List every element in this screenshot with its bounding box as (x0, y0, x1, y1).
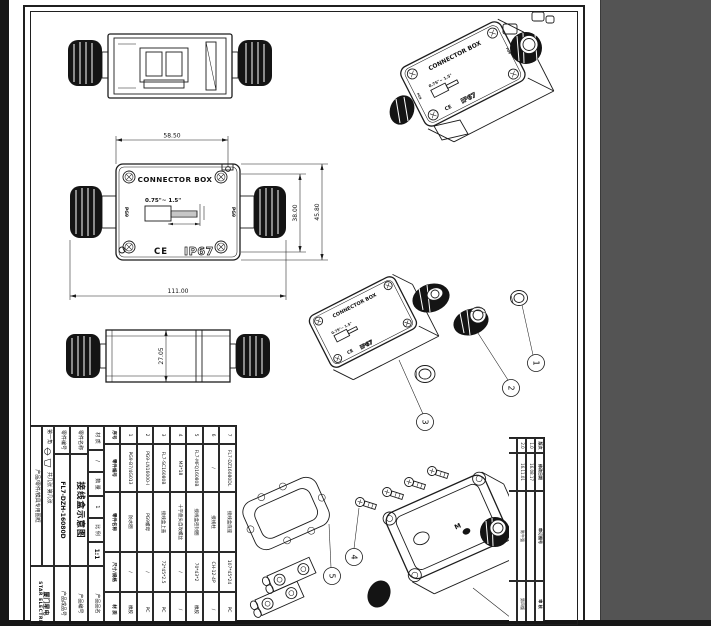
svg-text:5: 5 (328, 573, 337, 578)
title-bom-inner: 序号零件编号零件名称尺寸/规格材 质1PG9-B7/4G013防水圈/橡胶2PG… (31, 425, 237, 621)
table-cell: 接线盒上盖 (154, 492, 171, 552)
product-fin-label: 产品成品号 (54, 566, 70, 621)
side-gland-left (66, 334, 106, 378)
table-cell: / (203, 444, 220, 492)
cad-sheet: 58.50 CONNECTOR BOX 0.75"~ 1.5" (0, 0, 711, 626)
table-cell (509, 453, 517, 491)
table-cell: 修改日期 (535, 453, 544, 491)
table-cell: / (137, 552, 154, 592)
top-view (60, 22, 290, 110)
table-cell: FL7-DZ16080DL (220, 444, 237, 492)
callout-5: 5 (324, 568, 341, 585)
svg-text:4: 4 (350, 554, 359, 559)
screws (354, 465, 449, 511)
product-label: CONNECTOR BOX (138, 175, 213, 184)
iso-product-label: CONNECTOR BOX (427, 40, 482, 73)
scale-label: 比 例 (88, 518, 104, 542)
iso-ip67: IP67 (459, 91, 477, 105)
dim-overall-length: 111.00 (70, 240, 286, 300)
top-view-body (108, 34, 232, 98)
company-cn: 厦门星电 (41, 591, 48, 615)
part-name-value: 接线盒示意图 (70, 454, 88, 566)
table-cell: 5 (187, 426, 204, 444)
material-label: 材 质 (88, 426, 104, 450)
bottom-exploded-view: M (233, 428, 525, 626)
qty-value: 1 (88, 496, 104, 518)
table-cell (526, 491, 535, 581)
table-cell: CH-12-4P (203, 552, 220, 592)
iso-ce: CE (444, 104, 454, 113)
revision-inner: 版次修改日期审订图号审 核1.016.08.172.016.11.01陈午强第四… (509, 437, 545, 621)
first-angle-symbol (44, 447, 53, 469)
table-cell: 橡胶 (187, 592, 204, 621)
ce-mark: CE (154, 247, 168, 257)
table-cell: 2.0 (517, 438, 526, 453)
table-cell: 陈午强 (517, 491, 526, 581)
top-view-gland-left (68, 40, 108, 86)
callout-1: 1 (528, 355, 545, 372)
table-cell: / (121, 552, 138, 592)
table-cell: 第四版 (517, 581, 526, 621)
table-cell: FL7-SC16080B (154, 444, 171, 492)
svg-text:3: 3 (421, 419, 430, 424)
part-no-value: FL7-DZH-16080D (54, 454, 70, 566)
table-cell (509, 438, 517, 453)
side-gland-right (230, 334, 270, 378)
iso-gland-left (386, 92, 419, 128)
exploded-ce: CE (346, 348, 354, 356)
pg9-left-label: PG9 (123, 207, 129, 217)
sheet-border-right (583, 5, 585, 620)
table-cell: / (170, 552, 187, 592)
table-cell: M3*18 (170, 444, 187, 492)
isometric-view: CONNECTOR BOX 0.75"~ 1.5" CE IP67 PG9 PG… (376, 6, 566, 166)
table-cell (509, 581, 517, 621)
table-cell: 1 (121, 426, 138, 444)
qty-label: 数 量 (88, 472, 104, 496)
table-cell: 72*45*2.5 (154, 552, 171, 592)
table-cell: 3 (154, 426, 171, 444)
pg9-right-label: PG9 (230, 207, 236, 217)
part-no-label: 零件编号 (54, 426, 70, 454)
table-cell: PC (154, 592, 171, 621)
table-cell: FL7-MFQ16080B (187, 444, 204, 492)
exploded-product-label: CONNECTOR BOX (332, 292, 378, 319)
part-name-label: 零件名称 (70, 426, 88, 454)
table-cell: / (170, 592, 187, 621)
projection-label: 第一角 (45, 429, 51, 444)
table-cell: 版次 (535, 438, 544, 453)
table-cell: 审订图号 (535, 491, 544, 581)
iso-gland (503, 12, 554, 64)
sheet-border-left (23, 5, 25, 620)
table-cell (526, 581, 535, 621)
table-cell: 审 核 (535, 581, 544, 621)
table-cell: PG9-LN16000-I (137, 444, 154, 492)
table-cell: 4 (170, 426, 187, 444)
table-cell: 16.11.01 (517, 453, 526, 491)
table-cell: 107*45*24 (220, 552, 237, 592)
table-cell: 7 (220, 426, 237, 444)
dim-top-width: 58.50 (116, 133, 228, 167)
table-cell: 16.08.17 (526, 453, 535, 491)
company-cell: 厦门星电 STAR ELECTRIC (31, 566, 54, 621)
revision-grid: 版次修改日期审订图号审 核1.016.08.172.016.11.01陈午强第四… (509, 438, 544, 621)
dim-inner-height-text: 38.00 (292, 204, 299, 221)
exploded-box-face: CONNECTOR BOX 0.75"~ 1.5" CE IP67 (307, 274, 419, 369)
svg-text:2: 2 (507, 385, 516, 390)
side-view: 27.05 (58, 318, 290, 400)
table-cell: 接线柱 (203, 492, 220, 552)
iso-face: CONNECTOR BOX 0.75"~ 1.5" CE IP67 PG9 PG… (398, 19, 528, 129)
front-gland-right (240, 186, 286, 238)
table-cell: 零件名称 (104, 492, 121, 552)
title-bom-table: 序号零件编号零件名称尺寸/规格材 质1PG9-B7/4G013防水圈/橡胶2PG… (31, 425, 237, 621)
top-view-gland-right (232, 40, 272, 86)
table-cell: PC (220, 592, 237, 621)
table-cell: PG9-B7/4G013 (121, 444, 138, 492)
seal-ring-1 (511, 291, 528, 306)
gasket (235, 469, 337, 557)
material-value: / (88, 450, 104, 472)
ip67-mark: IP67 (184, 245, 214, 258)
revision-table: 版次修改日期审订图号审 核1.016.08.172.016.11.01陈午强第四… (509, 437, 545, 621)
table-cell: 防水圈 (121, 492, 138, 552)
dim-overall-length-text: 111.00 (168, 288, 189, 295)
terminal-blocks (249, 557, 316, 618)
cable-strip-diagram: 0.75"~ 1.5" (145, 198, 204, 226)
table-cell (509, 491, 517, 581)
frame-label: 产品/零件/模具专用图框 (31, 426, 42, 566)
table-cell: / (203, 592, 220, 621)
base-gland-right (480, 517, 510, 547)
table-cell: 6 (203, 426, 220, 444)
projection-row: 第一角 共几张 第几张 (42, 426, 54, 566)
svg-text:1: 1 (532, 360, 541, 365)
table-cell: 橡胶 (121, 592, 138, 621)
company-en: STAR ELECTRIC (36, 581, 41, 621)
gland-cap (409, 279, 454, 317)
table-cell: 2 (137, 426, 154, 444)
table-cell: 尺寸/规格 (104, 552, 121, 592)
iso-pg9-left: PG9 (416, 92, 423, 100)
table-cell: 接线盒底座 (220, 492, 237, 552)
table-cell: 接线盒密封圈 (187, 492, 204, 552)
table-cell: PC (137, 592, 154, 621)
callout-4: 4 (346, 549, 363, 566)
scale-value: 1:1 (88, 542, 104, 566)
sheets-label: 共几张 第几张 (45, 472, 51, 504)
side-view-body (106, 330, 230, 382)
gland-body (450, 304, 492, 340)
table-cell: 70*43*2 (187, 552, 204, 592)
table-cell: 材 质 (104, 592, 121, 621)
front-gland-left (70, 186, 116, 238)
iso-size-range: 0.75"~ 1.5" (428, 72, 453, 88)
bom-grid: 序号零件编号零件名称尺寸/规格材 质1PG9-B7/4G013防水圈/橡胶2PG… (104, 426, 236, 621)
dim-body-thickness-text: 27.05 (158, 347, 165, 364)
table-cell: 序号 (104, 426, 121, 444)
product-name-label: 产品品名 (88, 566, 104, 621)
dim-top-width-text: 58.50 (163, 133, 180, 140)
table-cell: 十字盘头自攻螺丝 (170, 492, 187, 552)
dim-overall-height-text: 45.80 (314, 203, 321, 220)
dim-body-thickness: 27.05 (158, 330, 168, 382)
left-dark-bar (0, 0, 9, 626)
callout-2: 2 (503, 380, 520, 397)
table-cell: 零件编号 (104, 444, 121, 492)
seal-ring-3 (415, 366, 435, 383)
table-cell: 1.0 (526, 438, 535, 453)
product-no-label: 产品编号 (70, 566, 88, 621)
m-mark: M (453, 522, 462, 532)
right-gray-panel (600, 0, 711, 626)
table-cell: PG9螺母 (137, 492, 154, 552)
base-gland-left (363, 577, 394, 612)
exploded-gland-view: CONNECTOR BOX 0.75"~ 1.5" CE IP67 (295, 268, 567, 440)
size-range-label: 0.75"~ 1.5" (145, 198, 181, 204)
